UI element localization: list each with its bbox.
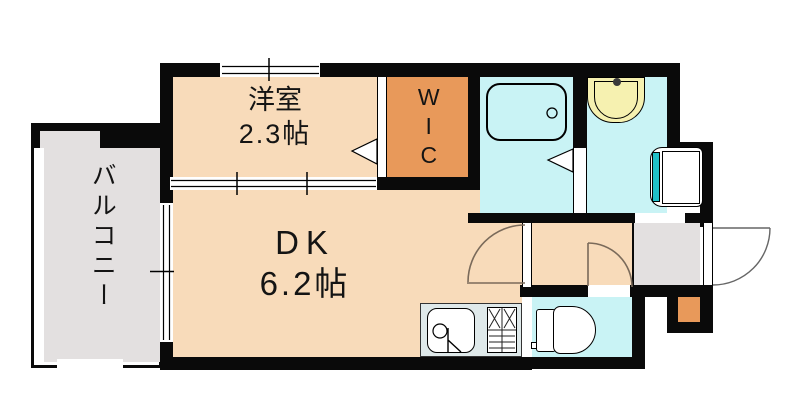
opening-washroom	[635, 213, 685, 223]
window-west-top	[220, 63, 320, 77]
western-room-size: 2.3帖	[185, 118, 365, 152]
balcony-label: バルコニー	[86, 162, 117, 312]
balcony-floor-notch	[40, 131, 100, 148]
door-bathroom	[573, 148, 587, 213]
wall	[573, 63, 587, 148]
bathtub	[486, 83, 567, 141]
wall	[468, 63, 480, 190]
room-entrance	[634, 223, 700, 285]
dk-label: DK 6.2帖	[195, 222, 415, 305]
wic-label: WIC	[414, 84, 443, 171]
door-wic	[377, 77, 387, 177]
sliding-partition-west-dk	[170, 177, 377, 190]
western-room-label: 洋室 2.3帖	[185, 84, 365, 152]
balcony-bottom-opening	[57, 359, 123, 368]
dk-size: 6.2帖	[195, 263, 415, 304]
kitchen-sink	[427, 308, 475, 353]
western-room-name: 洋室	[185, 84, 365, 118]
door-front	[703, 223, 713, 285]
washing-machine-accent	[652, 152, 660, 202]
wall	[685, 213, 713, 223]
wall	[468, 213, 635, 223]
washbasin-faucet	[613, 78, 621, 86]
dk-name: DK	[195, 222, 415, 263]
wall	[520, 357, 645, 369]
floor-plan: 洋室 2.3帖 DK 6.2帖 WIC バルコニー	[0, 0, 800, 401]
wall	[667, 322, 713, 333]
window-balcony	[160, 203, 173, 342]
door-toilet-opening	[588, 285, 630, 297]
door-dk	[522, 223, 532, 287]
door-arc	[713, 228, 770, 285]
entrance-step-line	[632, 223, 634, 285]
gas-stove	[487, 307, 517, 353]
wall	[160, 357, 532, 370]
wall	[377, 177, 480, 190]
washing-machine-drum	[662, 151, 700, 204]
room-corridor	[532, 223, 632, 285]
pipe-space-block	[678, 297, 700, 322]
